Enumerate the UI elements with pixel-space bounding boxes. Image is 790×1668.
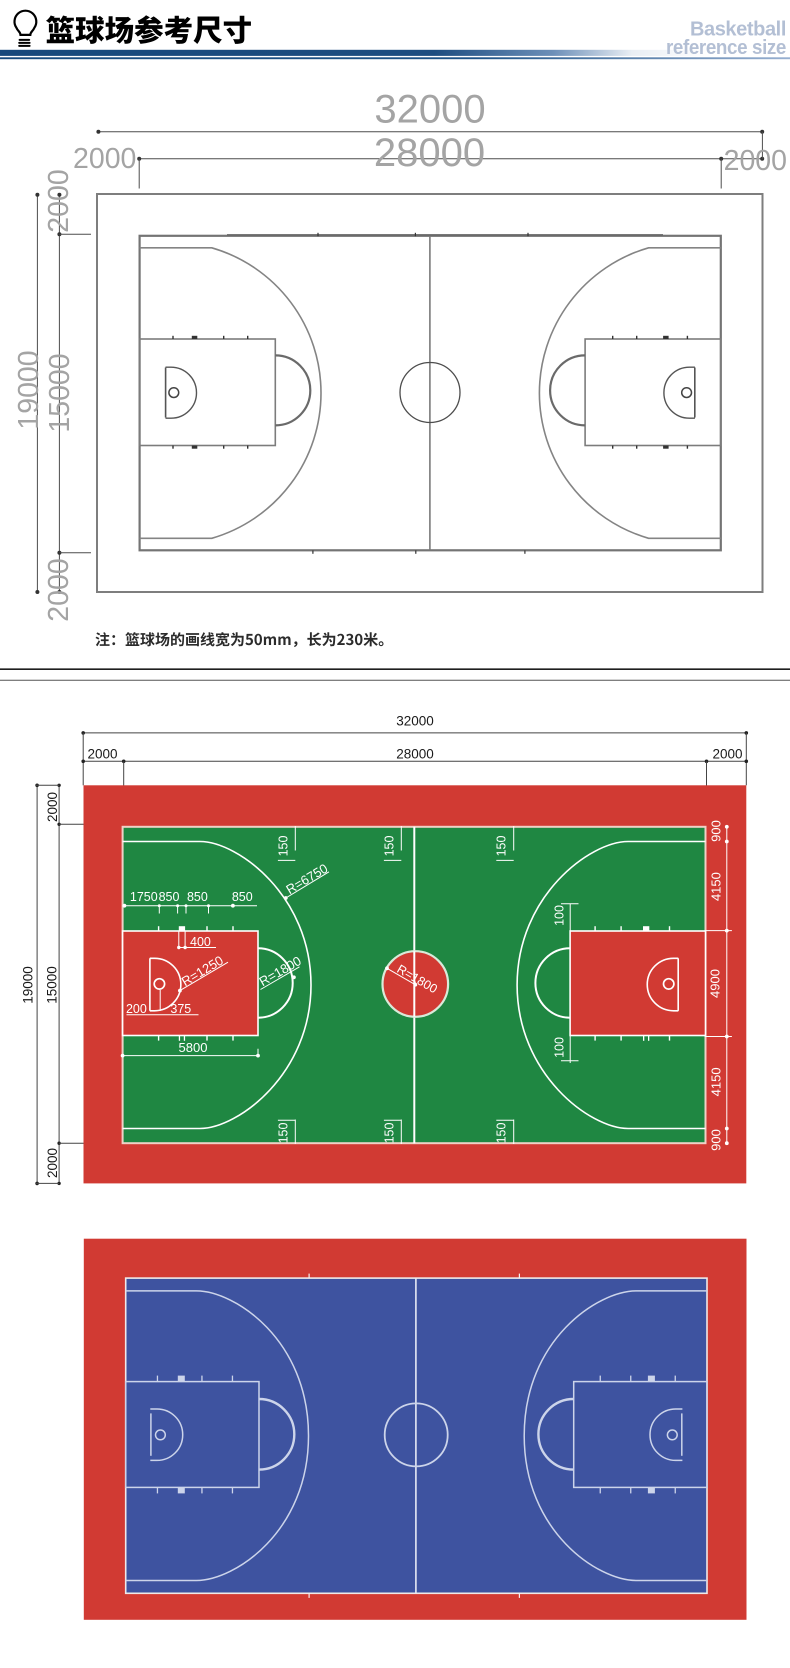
svg-text:850: 850 (232, 890, 253, 904)
svg-text:2000: 2000 (45, 1148, 60, 1178)
svg-text:150: 150 (382, 1123, 396, 1144)
svg-text:400: 400 (190, 935, 211, 949)
svg-text:900: 900 (709, 1129, 724, 1151)
svg-text:2000: 2000 (43, 169, 75, 232)
svg-text:4900: 4900 (708, 969, 723, 998)
svg-text:200: 200 (126, 1002, 147, 1016)
svg-text:15000: 15000 (44, 353, 76, 432)
svg-text:2000: 2000 (712, 747, 742, 762)
svg-text:2000: 2000 (724, 145, 787, 177)
svg-text:28000: 28000 (374, 131, 485, 175)
svg-text:100: 100 (553, 1037, 567, 1058)
svg-text:100: 100 (553, 905, 567, 926)
svg-text:19000: 19000 (13, 350, 45, 429)
svg-text:150: 150 (495, 836, 509, 857)
svg-text:2000: 2000 (88, 747, 118, 762)
svg-text:19000: 19000 (21, 966, 36, 1004)
svg-text:375: 375 (170, 1002, 191, 1016)
svg-text:150: 150 (495, 1123, 509, 1144)
svg-text:2000: 2000 (45, 792, 60, 822)
svg-text:1750: 1750 (130, 890, 158, 904)
svg-text:15000: 15000 (45, 966, 60, 1004)
svg-text:150: 150 (276, 1123, 290, 1144)
svg-text:2000: 2000 (73, 143, 136, 175)
svg-text:reference size: reference size (666, 36, 787, 59)
svg-text:150: 150 (382, 836, 396, 857)
svg-text:28000: 28000 (396, 747, 434, 762)
svg-text:32000: 32000 (396, 714, 434, 729)
svg-text:5800: 5800 (179, 1040, 208, 1055)
svg-text:32000: 32000 (374, 88, 485, 132)
svg-text:900: 900 (709, 820, 724, 842)
svg-text:4150: 4150 (709, 1067, 724, 1096)
svg-text:850: 850 (159, 890, 180, 904)
svg-text:2000: 2000 (43, 558, 75, 621)
svg-text:150: 150 (276, 836, 290, 857)
svg-text:4150: 4150 (709, 872, 724, 901)
svg-text:850: 850 (187, 890, 208, 904)
